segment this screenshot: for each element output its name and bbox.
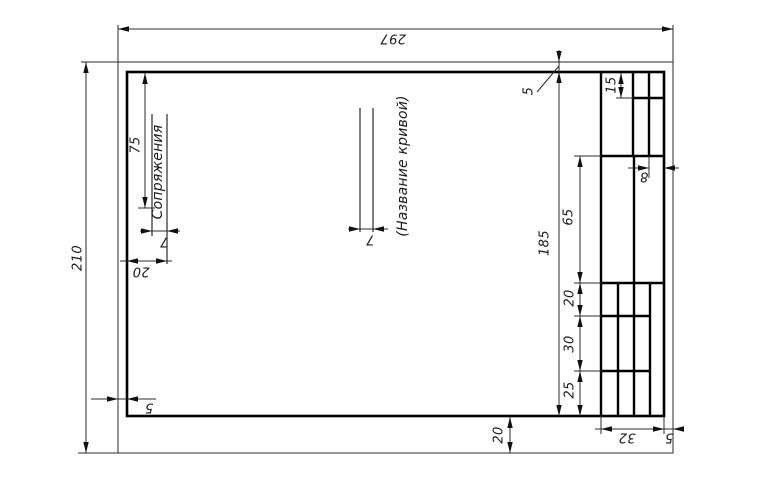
dim-block-height: 185: [538, 230, 553, 256]
work-title-inscription: Сопряжения: [150, 125, 166, 220]
dim-col-last: 8: [640, 169, 649, 184]
dimension-lines: [78, 25, 683, 453]
dim-title-line-gap: 7: [160, 234, 169, 249]
dim-row-30: 30: [563, 335, 578, 352]
curve-name-placeholder-text: (Название кривой): [395, 95, 411, 236]
drawing-sheet-layout: 297 210 75 7 20 5 7 5 185 65 20 30 25 15…: [0, 0, 776, 478]
dimension-arrowheads: [83, 26, 684, 453]
dim-row-20: 20: [563, 289, 578, 306]
dim-title-length: 75: [129, 136, 144, 153]
dim-row-65: 65: [562, 208, 577, 225]
dim-row-top: 15: [605, 76, 620, 93]
drawing-linework: [0, 0, 776, 478]
dim-margin-right: 5: [665, 430, 674, 445]
dim-margin-left: 5: [145, 400, 154, 415]
dim-curve-line-gap: 7: [366, 232, 375, 247]
dim-sheet-height: 210: [71, 245, 86, 271]
dim-margin-top: 5: [522, 87, 537, 96]
dim-sheet-width: 297: [380, 31, 406, 46]
inscription-guidelines: [152, 108, 373, 264]
dim-block-width: 32: [618, 430, 635, 445]
dim-margin-bottom: 20: [492, 426, 507, 443]
title-block: [601, 72, 664, 416]
dim-row-25: 25: [563, 381, 578, 398]
dim-title-offset: 20: [132, 264, 149, 279]
